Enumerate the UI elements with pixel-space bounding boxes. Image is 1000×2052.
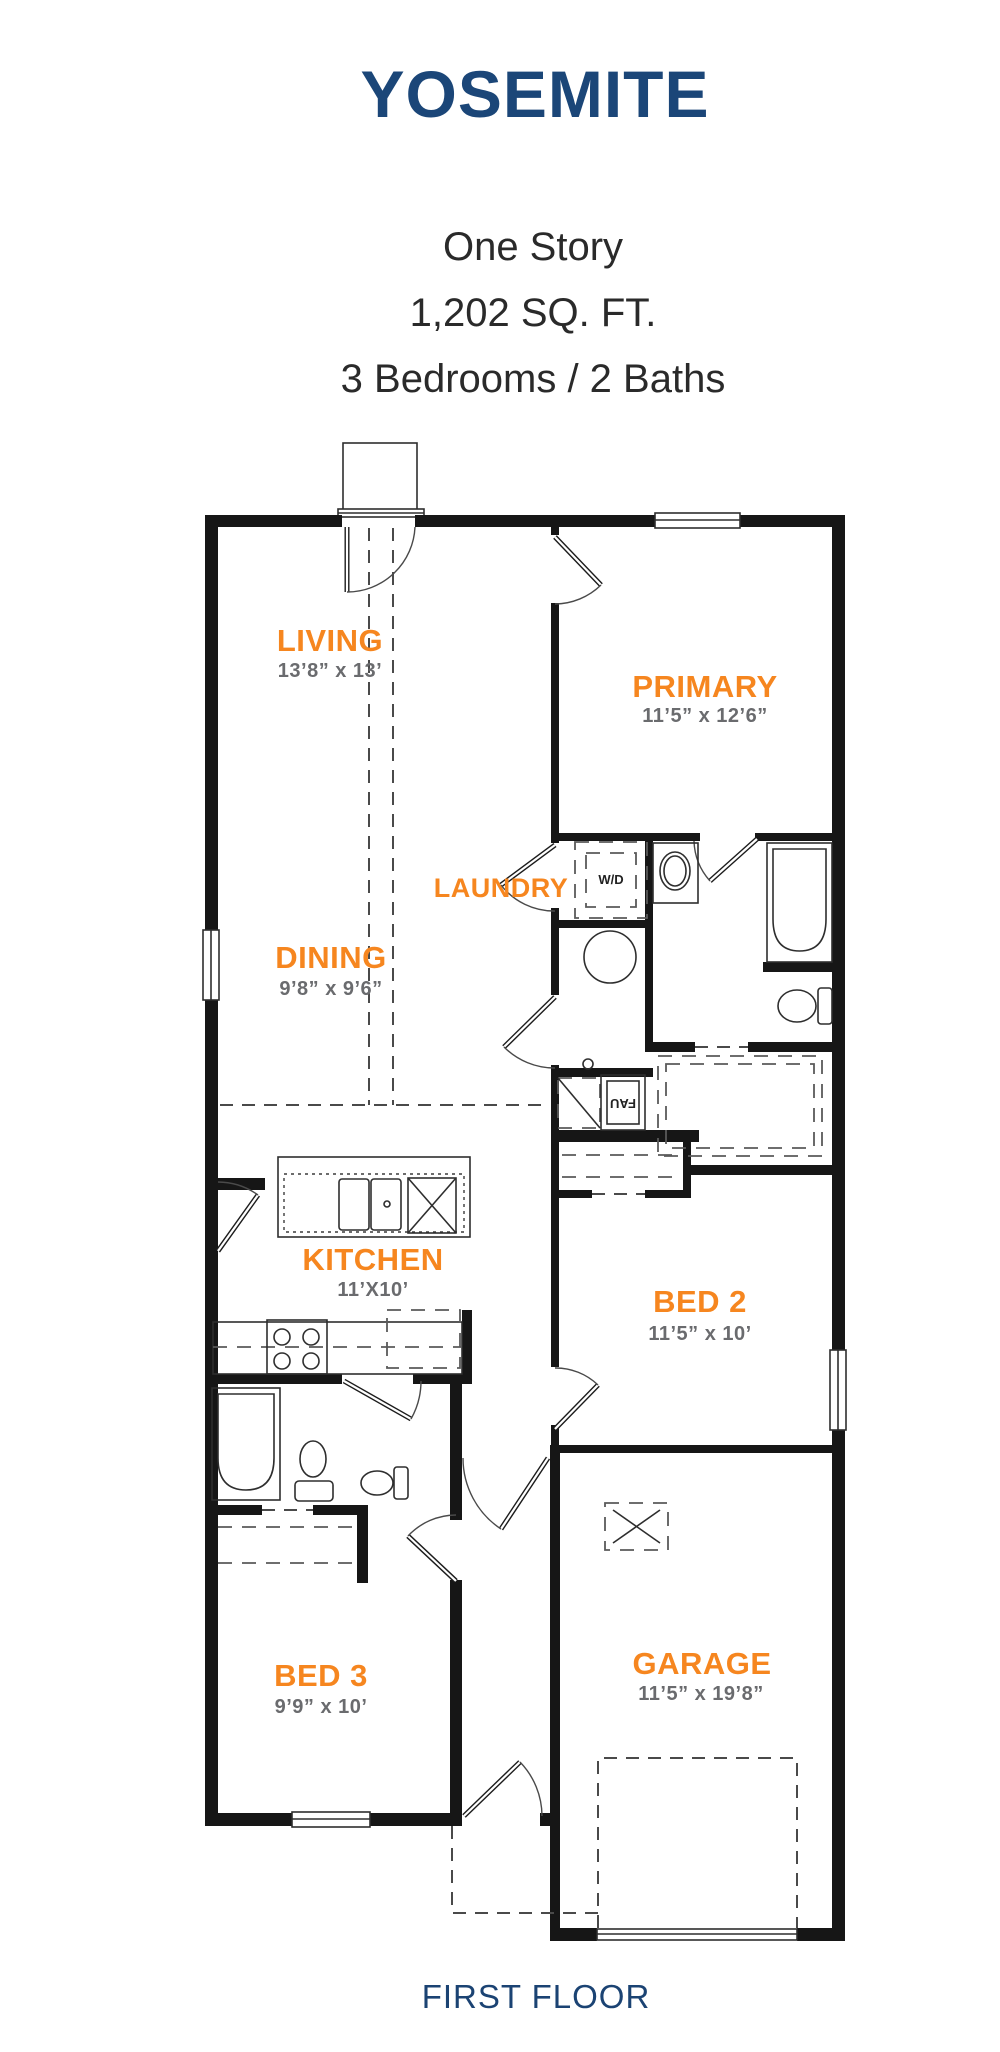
kitchen-label: KITCHEN [302,1242,443,1277]
primary-bathtub [767,843,832,962]
hall-detail-circle [583,1059,593,1069]
kitchen-sink-left [339,1179,369,1230]
windows [203,513,846,1940]
washer-dryer: W/D [575,842,647,918]
bath2-toilet [361,1467,408,1499]
primary-vanity [653,843,698,903]
kitchen-island [278,1157,470,1237]
garage-label: GARAGE [632,1646,771,1681]
window-bottom-bed3 [292,1812,370,1827]
dining-label: DINING [275,940,387,975]
bed3-label: BED 3 [274,1658,368,1693]
entry-porch [338,443,424,517]
walls [205,515,845,1941]
refrigerator [387,1310,460,1368]
bed3-door [408,1515,456,1581]
bed2-dims: 11’5” x 10’ [648,1323,751,1345]
garage-bay-outline [598,1758,797,1928]
fau-unit: FAU [558,1075,645,1130]
entry-door [347,527,415,592]
fau-label: FAU [610,1096,636,1111]
living-dims: 13’8” x 13’ [278,660,382,682]
window-left-dining [203,930,219,1000]
dashed-lines [220,528,797,1928]
garage-door [597,1929,797,1940]
floor-label: FIRST FLOOR [0,1978,1000,2016]
primary-dims: 11’5” x 12’6” [642,705,767,727]
dining-dims: 9’8” x 9’6” [279,978,382,1000]
washer-dryer-label: W/D [598,872,623,887]
floor-plan-drawing: W/D FAU [0,0,1000,2052]
living-label: LIVING [277,623,383,658]
primary-toilet [778,988,832,1024]
garage-dims: 11’5” x 19’8” [638,1683,763,1705]
bath2-sink [295,1441,333,1501]
water-heater-closet-door [504,997,555,1068]
bed2-door [555,1368,598,1429]
bath2-door [344,1381,421,1419]
pantry-door [218,1182,258,1251]
attic-access [605,1503,668,1550]
bed2-label: BED 2 [653,1284,747,1319]
laundry-label: LAUNDRY [434,873,569,903]
water-heater [584,931,636,983]
back-door [464,1762,542,1816]
bed3-dims: 9’9” x 10’ [275,1696,368,1718]
primary-bedroom-door [555,537,601,604]
primary-bath-door [694,839,757,881]
kitchen-dims: 11’X10’ [337,1279,408,1301]
kitchen-faucet [384,1201,390,1207]
kitchen-counter [213,1310,462,1374]
window-top-primary [655,513,740,528]
window-right-bed2 [830,1350,846,1430]
primary-label: PRIMARY [632,669,777,704]
kitchen-sink-right [371,1179,401,1230]
hall-to-garage-door [463,1458,548,1529]
bath2-bathtub [212,1388,280,1500]
floor-plan-page: YOSEMITE One Story 1,202 SQ. FT. 3 Bedro… [0,0,1000,2052]
dishwasher [408,1178,456,1233]
patio-outline [452,1826,598,1913]
